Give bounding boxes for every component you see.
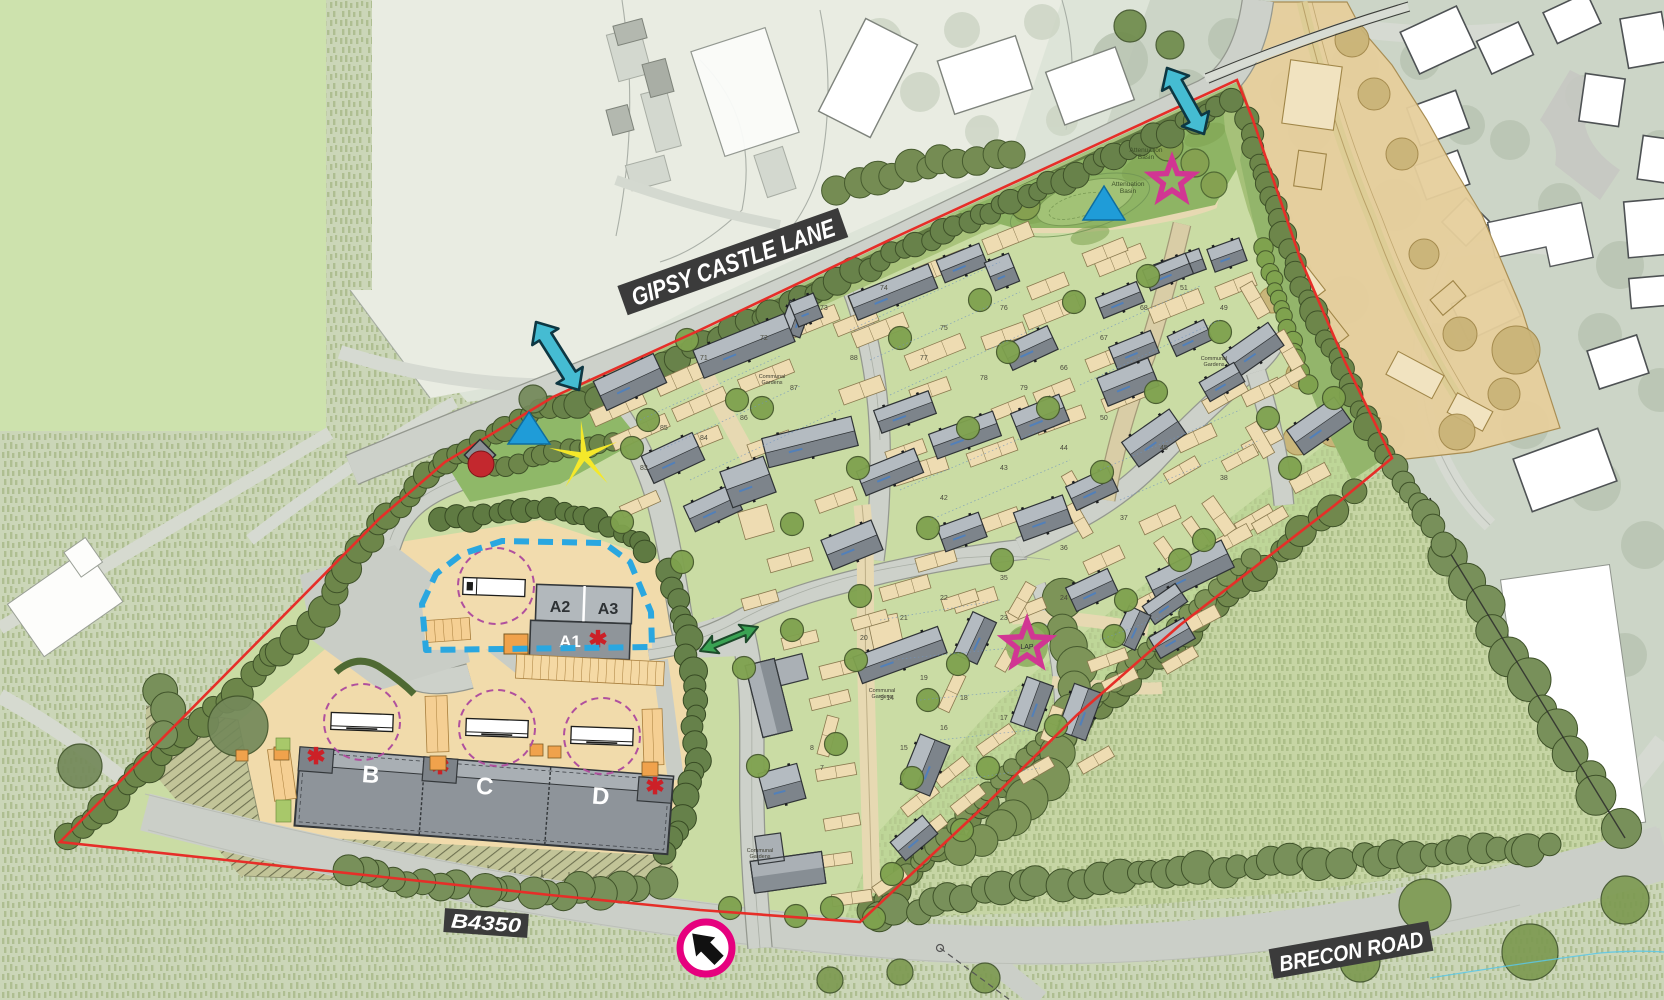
svg-text:78: 78 xyxy=(980,375,988,382)
svg-text:36: 36 xyxy=(1060,545,1068,552)
svg-text:72: 72 xyxy=(760,335,768,342)
svg-text:Gardens: Gardens xyxy=(761,380,782,386)
svg-text:71: 71 xyxy=(700,355,708,362)
svg-text:18: 18 xyxy=(960,695,968,702)
svg-text:LAP: LAP xyxy=(1020,644,1034,651)
svg-text:A2: A2 xyxy=(550,599,571,616)
svg-text:50: 50 xyxy=(1100,415,1108,422)
svg-text:77: 77 xyxy=(920,355,928,362)
svg-text:Basin: Basin xyxy=(1120,188,1137,195)
svg-text:75: 75 xyxy=(940,325,948,332)
svg-text:7: 7 xyxy=(820,765,824,772)
svg-text:83: 83 xyxy=(640,465,648,472)
svg-text:73: 73 xyxy=(820,305,828,312)
svg-text:85: 85 xyxy=(660,425,668,432)
svg-text:B: B xyxy=(361,761,380,789)
svg-text:16: 16 xyxy=(940,725,948,732)
svg-text:21: 21 xyxy=(900,615,908,622)
svg-text:Basin: Basin xyxy=(1138,154,1155,161)
svg-text:Gardens: Gardens xyxy=(749,854,770,860)
svg-text:23: 23 xyxy=(1000,615,1008,622)
svg-text:49: 49 xyxy=(1220,305,1228,312)
svg-text:45: 45 xyxy=(1160,445,1168,452)
svg-text:68: 68 xyxy=(1140,305,1148,312)
svg-text:A3: A3 xyxy=(598,601,619,618)
svg-text:67: 67 xyxy=(1100,335,1108,342)
svg-text:38: 38 xyxy=(1220,475,1228,482)
svg-text:8: 8 xyxy=(810,745,814,752)
svg-text:Attenuation: Attenuation xyxy=(1112,181,1145,188)
svg-text:35: 35 xyxy=(1000,575,1008,582)
svg-text:15: 15 xyxy=(900,745,908,752)
svg-text:86: 86 xyxy=(740,415,748,422)
svg-text:20: 20 xyxy=(860,635,868,642)
svg-text:24: 24 xyxy=(1060,595,1068,602)
svg-text:66: 66 xyxy=(1060,365,1068,372)
svg-text:79: 79 xyxy=(1020,385,1028,392)
svg-text:Attenuation: Attenuation xyxy=(1130,147,1163,154)
svg-text:✱: ✱ xyxy=(306,743,325,769)
svg-text:✱: ✱ xyxy=(645,773,664,799)
svg-text:88: 88 xyxy=(850,355,858,362)
svg-text:76: 76 xyxy=(1000,305,1008,312)
svg-text:D: D xyxy=(591,783,610,811)
svg-text:9-14: 9-14 xyxy=(880,695,894,702)
svg-text:19: 19 xyxy=(920,675,928,682)
svg-text:37: 37 xyxy=(1120,515,1128,522)
svg-text:51: 51 xyxy=(1180,285,1188,292)
svg-text:74: 74 xyxy=(880,285,888,292)
svg-text:42: 42 xyxy=(940,495,948,502)
svg-text:17: 17 xyxy=(1000,715,1008,722)
svg-text:84: 84 xyxy=(700,435,708,442)
svg-text:43: 43 xyxy=(1000,465,1008,472)
svg-text:44: 44 xyxy=(1060,445,1068,452)
svg-text:C: C xyxy=(475,773,494,801)
svg-text:87: 87 xyxy=(790,385,798,392)
svg-text:Gardens: Gardens xyxy=(1203,362,1224,368)
svg-text:22: 22 xyxy=(940,595,948,602)
